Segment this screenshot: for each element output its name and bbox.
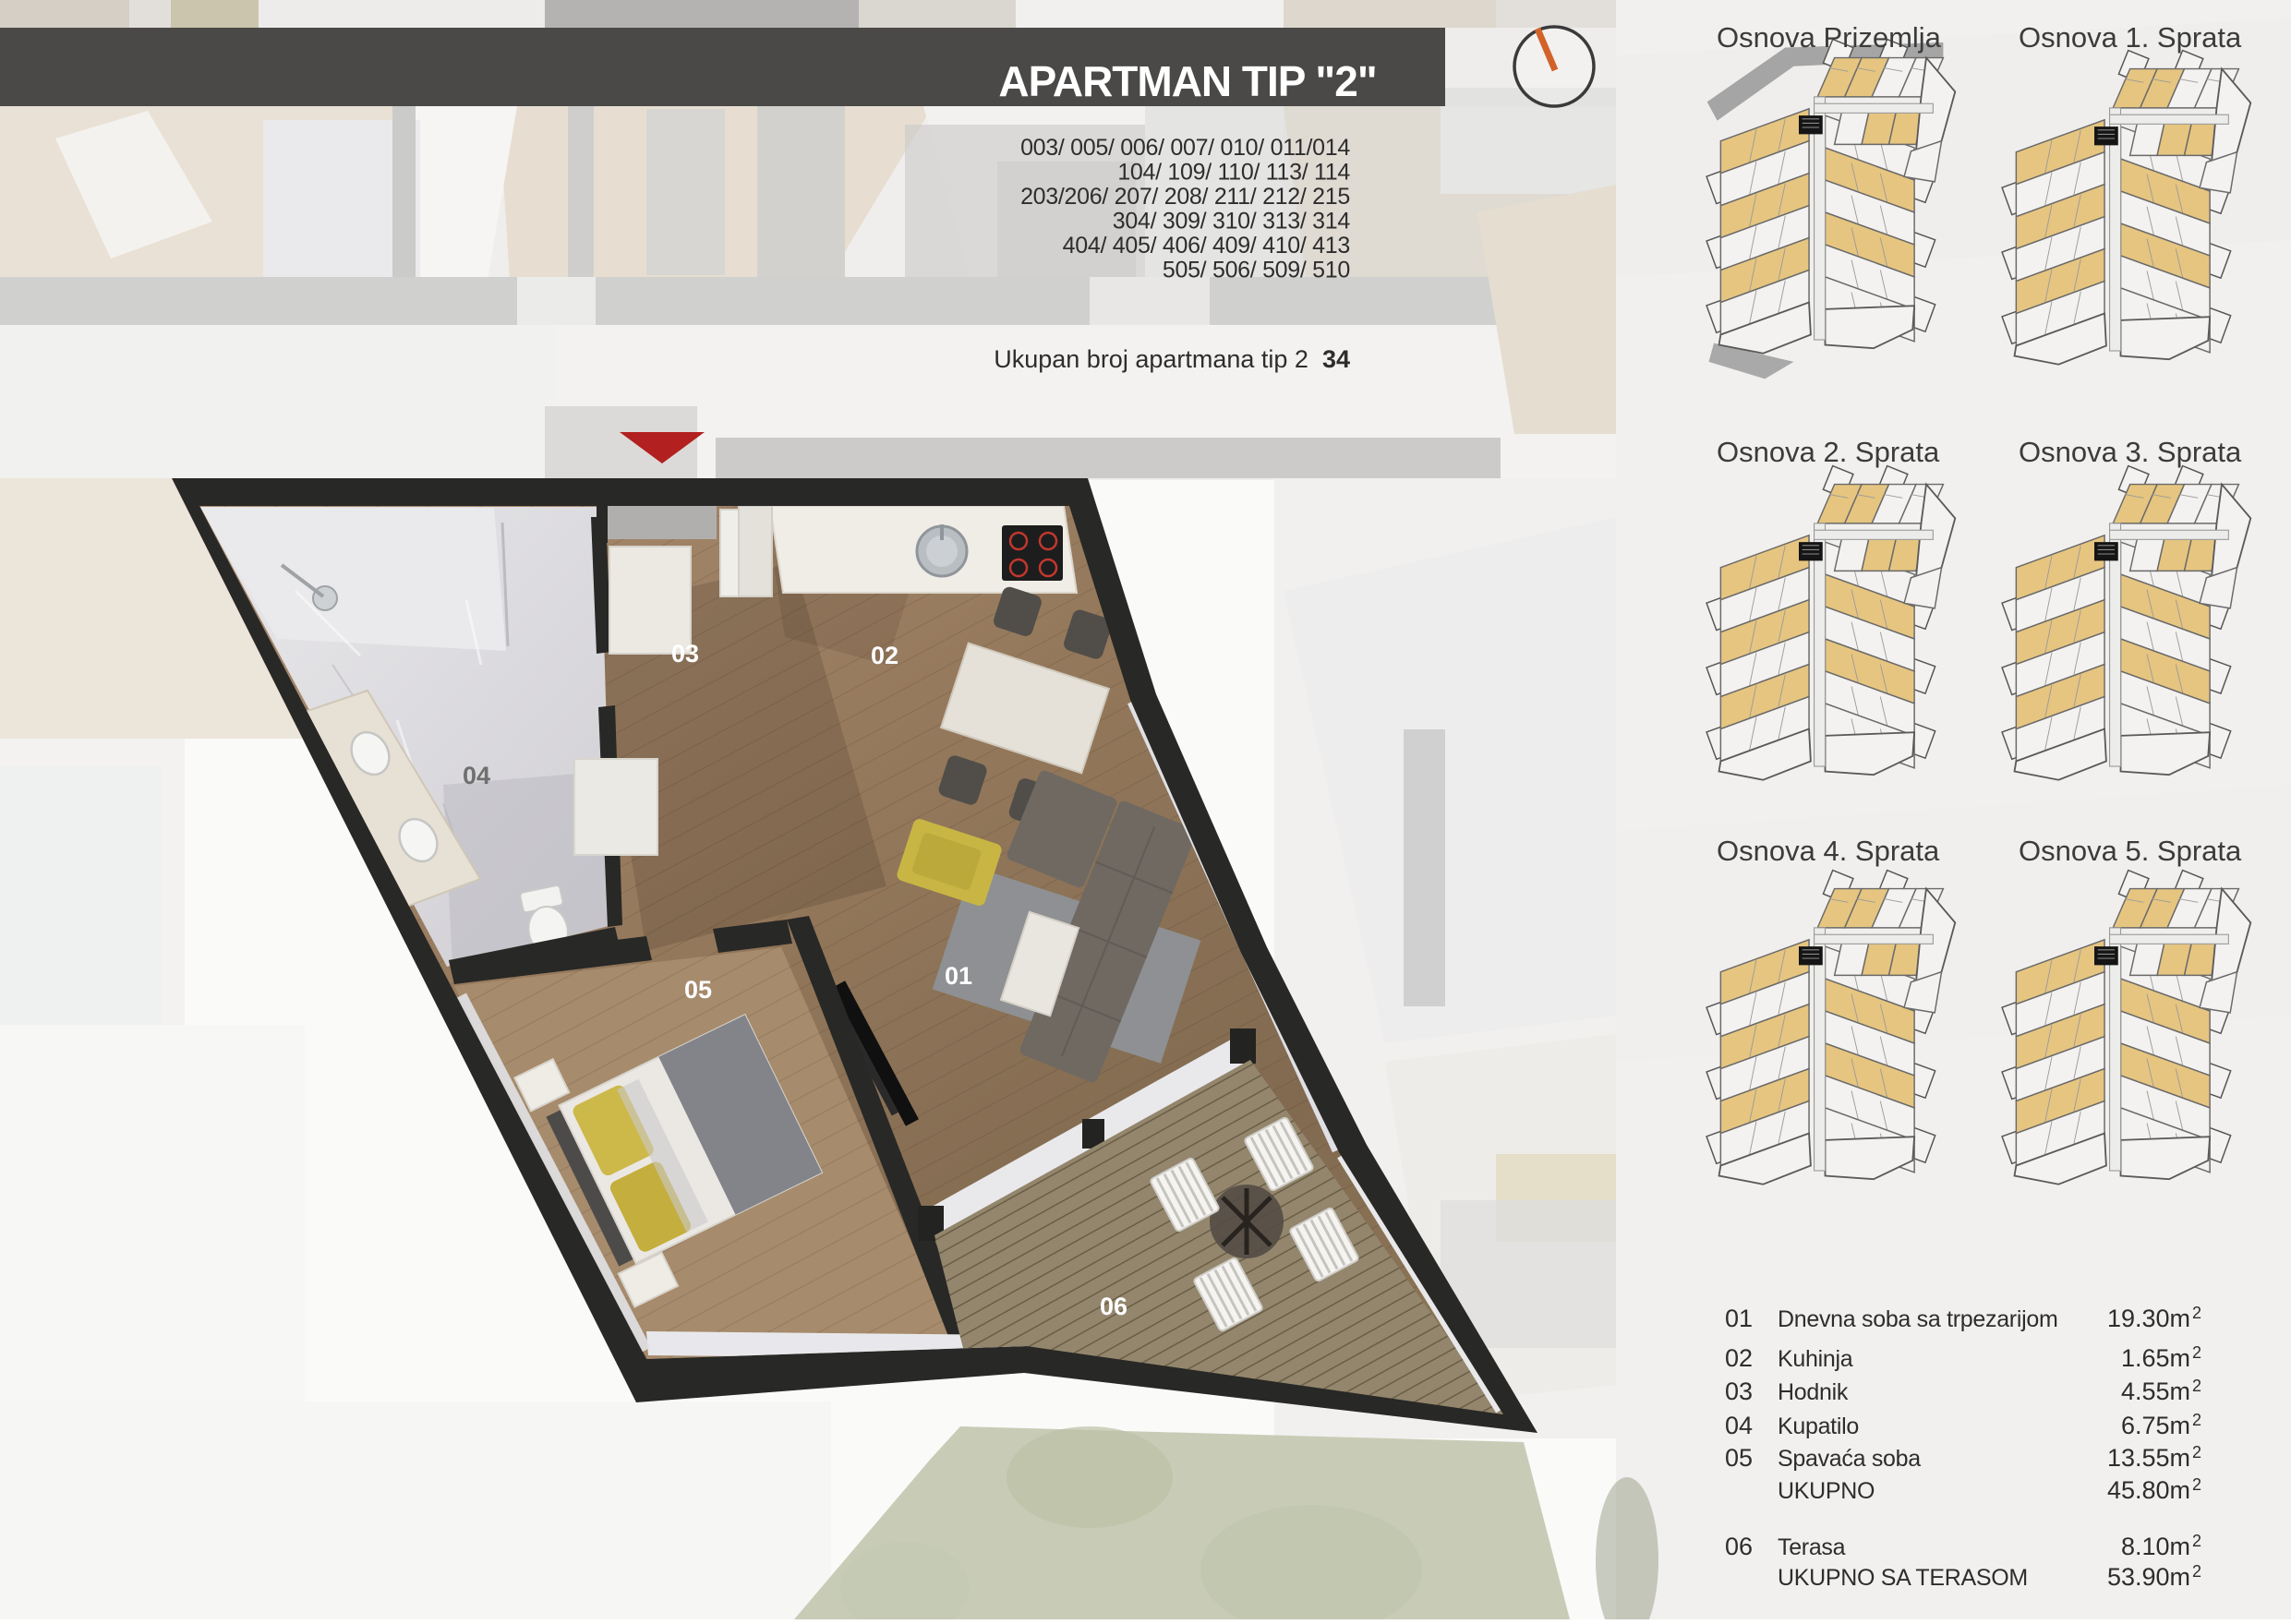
svg-text:04: 04 [1725, 1412, 1753, 1439]
svg-text:UKUPNO SA TERASOM: UKUPNO SA TERASOM [1778, 1565, 2028, 1591]
svg-text:05: 05 [684, 976, 712, 1004]
svg-text:Terasa: Terasa [1778, 1534, 1846, 1560]
svg-text:Osnova 5. Sprata: Osnova 5. Sprata [2019, 835, 2242, 867]
svg-text:2: 2 [2192, 1304, 2201, 1322]
svg-text:404/ 405/ 406/ 409/ 410/ 413: 404/ 405/ 406/ 409/ 410/ 413 [1063, 233, 1350, 259]
svg-text:4.55m: 4.55m [2121, 1377, 2190, 1405]
svg-text:45.80m: 45.80m [2107, 1476, 2190, 1504]
svg-text:APARTMAN TIP "2": APARTMAN TIP "2" [998, 57, 1376, 105]
svg-text:Kuhinja: Kuhinja [1778, 1346, 1853, 1372]
svg-text:2: 2 [2192, 1377, 2201, 1395]
svg-text:003/ 005/ 006/ 007/ 010/ 011/0: 003/ 005/ 006/ 007/ 010/ 011/014 [1020, 135, 1350, 161]
svg-text:Osnova 3. Sprata: Osnova 3. Sprata [2019, 436, 2242, 468]
svg-text:05: 05 [1725, 1444, 1753, 1472]
svg-text:6.75m: 6.75m [2121, 1412, 2190, 1439]
svg-text:Kupatilo: Kupatilo [1778, 1413, 1859, 1439]
svg-text:Osnova 4. Sprata: Osnova 4. Sprata [1717, 835, 1940, 867]
svg-text:19.30m: 19.30m [2107, 1305, 2190, 1332]
svg-text:2: 2 [2192, 1343, 2201, 1362]
svg-text:Ukupan broj apartmana tip 2 3: Ukupan broj apartmana tip 2 34 [994, 345, 1350, 373]
svg-text:8.10m: 8.10m [2121, 1533, 2190, 1560]
svg-text:2: 2 [2192, 1532, 2201, 1550]
svg-text:03: 03 [671, 640, 699, 668]
svg-text:Osnova 1. Sprata: Osnova 1. Sprata [2019, 21, 2242, 54]
svg-text:01: 01 [1725, 1305, 1753, 1332]
svg-text:2: 2 [2192, 1562, 2201, 1581]
svg-text:06: 06 [1100, 1293, 1127, 1320]
svg-text:02: 02 [1725, 1344, 1753, 1372]
svg-text:53.90m: 53.90m [2107, 1563, 2190, 1591]
svg-text:01: 01 [945, 962, 972, 990]
svg-text:13.55m: 13.55m [2107, 1444, 2190, 1472]
svg-text:Hodnik: Hodnik [1778, 1379, 1849, 1405]
svg-text:505/ 506/ 509/ 510: 505/ 506/ 509/ 510 [1163, 258, 1350, 283]
svg-text:1.65m: 1.65m [2121, 1344, 2190, 1372]
svg-text:304/ 309/ 310/ 313/ 314: 304/ 309/ 310/ 313/ 314 [1113, 209, 1351, 235]
svg-text:104/ 109/ 110/ 113/ 114: 104/ 109/ 110/ 113/ 114 [1117, 160, 1350, 186]
svg-text:Osnova 2. Sprata: Osnova 2. Sprata [1717, 436, 1940, 468]
svg-text:2: 2 [2192, 1411, 2201, 1429]
svg-text:04: 04 [463, 762, 490, 789]
svg-text:Spavaća soba: Spavaća soba [1778, 1446, 1921, 1472]
svg-text:03: 03 [1725, 1377, 1753, 1405]
svg-text:06: 06 [1725, 1533, 1753, 1560]
svg-text:203/206/ 207/ 208/ 211/ 212/ 2: 203/206/ 207/ 208/ 211/ 212/ 215 [1020, 184, 1350, 210]
svg-text:Osnova Prizemlja: Osnova Prizemlja [1717, 21, 1942, 54]
svg-text:UKUPNO: UKUPNO [1778, 1478, 1875, 1504]
svg-text:2: 2 [2192, 1443, 2201, 1462]
svg-text:02: 02 [871, 642, 898, 669]
svg-text:2: 2 [2192, 1475, 2201, 1494]
svg-text:Dnevna soba sa trpezarijom: Dnevna soba sa trpezarijom [1778, 1306, 2057, 1332]
